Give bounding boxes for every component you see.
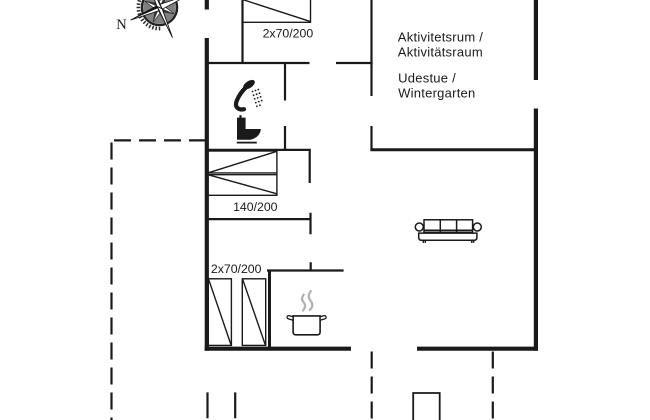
svg-text:Aktivitätsraum: Aktivitätsraum bbox=[398, 45, 483, 60]
svg-text:140/200: 140/200 bbox=[233, 200, 278, 214]
svg-text:2x70/200: 2x70/200 bbox=[263, 27, 314, 41]
svg-text:Aktivitetsrum /: Aktivitetsrum / bbox=[398, 30, 484, 45]
svg-text:Wintergarten: Wintergarten bbox=[398, 86, 475, 101]
svg-text:Udestue /: Udestue / bbox=[398, 71, 456, 86]
svg-text:N: N bbox=[116, 17, 127, 33]
svg-text:2x70/200: 2x70/200 bbox=[211, 262, 262, 276]
